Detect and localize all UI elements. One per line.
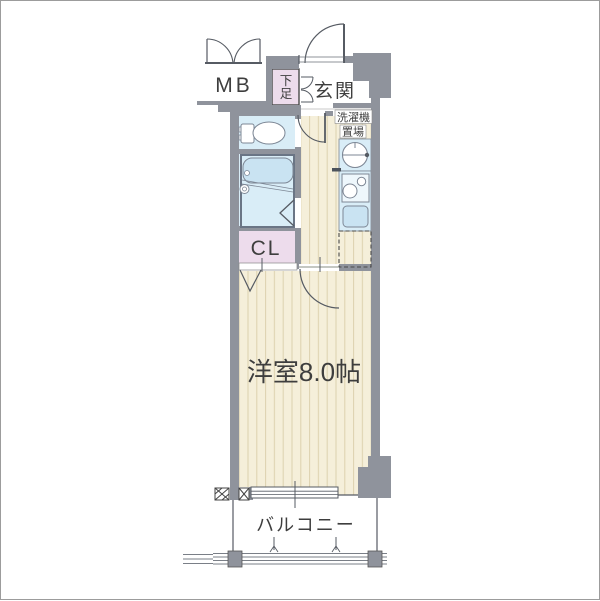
toilet-icon (239, 122, 285, 144)
railing-post-left (228, 551, 242, 567)
stove-icon (342, 174, 369, 202)
entrance-label: 玄関 (314, 80, 356, 102)
main-room-label: 洋室8.0帖 (247, 357, 361, 387)
pipe-shaft-hatch-right (239, 488, 249, 500)
mb-bottom-wall (218, 104, 267, 112)
washer-nook-top-wall (333, 103, 371, 108)
entrance-top-wall-left (266, 56, 299, 69)
pipe-shaft-hatch-left (215, 488, 229, 500)
toilet-bath-divider (239, 149, 301, 154)
washer-area-label-line1: 洗濯機 (337, 110, 370, 124)
sink-icon (343, 206, 368, 227)
mb-double-doors (205, 39, 262, 64)
railing-post-right (368, 551, 382, 567)
refrigerator-space-floor (339, 231, 371, 267)
shoe-cabinet-label-char2: 足 (280, 87, 293, 101)
balcony-railing (183, 554, 387, 565)
left-outer-wall (230, 104, 239, 500)
shoe-cabinet-under-wall (272, 105, 301, 111)
shoe-cabinet-doors (301, 77, 313, 102)
floor-plan-image: MB 下 足 玄関 洗濯機 置場 CL 洋室8.0帖 バルコニー (0, 0, 600, 600)
shoe-cabinet-side-wall (266, 69, 272, 111)
balcony-label: バルコニー (256, 515, 356, 535)
bath-door-opening (295, 198, 301, 228)
toilet-door-opening (295, 119, 301, 147)
hall-top-wall-left (230, 111, 299, 116)
shoe-cabinet-label-char1: 下 (280, 74, 293, 88)
closet-door-track (239, 263, 297, 270)
hall-top-wall-right (325, 111, 333, 116)
floor-plan-svg: MB 下 足 玄関 洗濯機 置場 CL 洋室8.0帖 バルコニー (1, 1, 600, 601)
meter-box-label: MB (215, 74, 253, 97)
right-outer-wall (371, 96, 380, 463)
top-right-wall-column (353, 53, 391, 98)
closet-label: CL (251, 237, 282, 260)
balcony-partition-marks (270, 537, 340, 552)
floor-strip-right-of-window (338, 487, 358, 495)
washer-area-label-line2: 置場 (342, 126, 364, 139)
